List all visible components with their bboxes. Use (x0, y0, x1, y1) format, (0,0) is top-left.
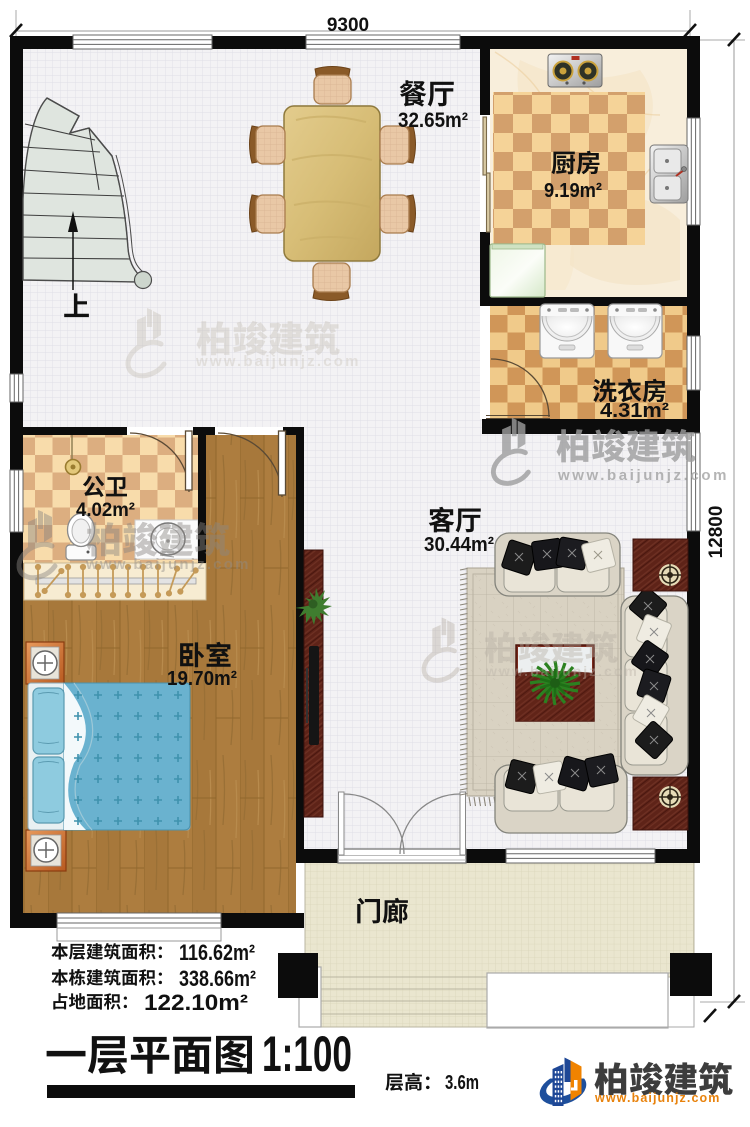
svg-text:www.baijunjz.com: www.baijunjz.com (485, 663, 639, 679)
svg-text:122.10m²: 122.10m² (144, 990, 248, 1015)
svg-text:9300: 9300 (327, 15, 369, 36)
svg-text:19.70m²: 19.70m² (167, 668, 237, 690)
svg-text:32.65m²: 32.65m² (398, 109, 468, 132)
svg-text:9.19m²: 9.19m² (544, 180, 602, 202)
svg-text:116.62m²: 116.62m² (179, 940, 255, 965)
svg-text:www.baijunjz.com: www.baijunjz.com (594, 1091, 720, 1105)
svg-text:3.6m: 3.6m (445, 1072, 479, 1094)
svg-text:4.02m²: 4.02m² (76, 500, 135, 521)
svg-text:www.baijunjz.com: www.baijunjz.com (85, 556, 251, 573)
svg-text:1:100: 1:100 (262, 1026, 352, 1082)
svg-text:338.66m²: 338.66m² (179, 966, 256, 991)
svg-text:12800: 12800 (706, 506, 727, 559)
svg-text:www.baijunjz.com: www.baijunjz.com (557, 467, 729, 484)
svg-text:4.31m²: 4.31m² (600, 400, 669, 422)
svg-text:30.44m²: 30.44m² (424, 534, 494, 556)
svg-text:www.baijunjz.com: www.baijunjz.com (195, 353, 361, 370)
